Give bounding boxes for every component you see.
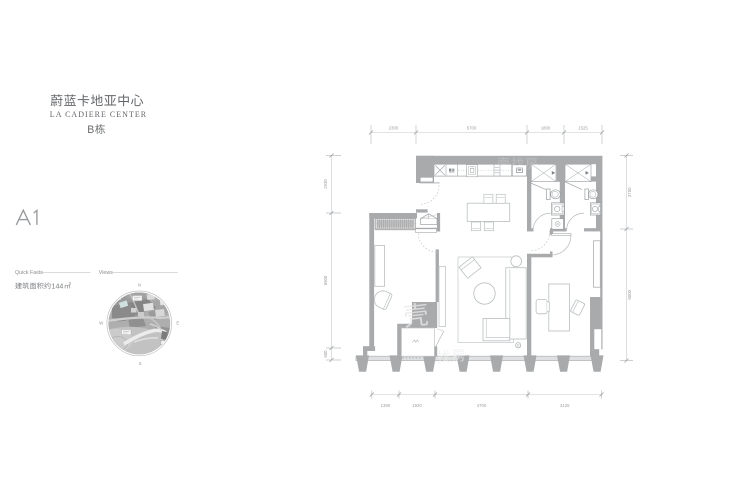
svg-text:600: 600 xyxy=(323,350,328,358)
svg-text:N: N xyxy=(138,283,141,288)
svg-text:S: S xyxy=(139,361,142,366)
svg-text:2930: 2930 xyxy=(323,179,328,189)
svg-text:4700: 4700 xyxy=(477,403,487,408)
svg-text:Quick Facts: Quick Facts xyxy=(15,270,43,276)
svg-text:6900: 6900 xyxy=(323,275,328,285)
svg-text:LA CADIERE CENTER: LA CADIERE CENTER xyxy=(50,110,147,119)
svg-text:B: B xyxy=(87,124,94,136)
svg-text:2300: 2300 xyxy=(389,126,399,131)
svg-text:E: E xyxy=(176,320,179,325)
svg-text:3750: 3750 xyxy=(627,187,632,197)
svg-text:1525: 1525 xyxy=(578,126,588,131)
svg-text:1800: 1800 xyxy=(541,126,551,131)
svg-text:Views: Views xyxy=(99,270,113,276)
svg-text:1920: 1920 xyxy=(412,403,422,408)
svg-text:6000: 6000 xyxy=(627,289,632,299)
svg-text:W: W xyxy=(99,321,104,326)
svg-text:5700: 5700 xyxy=(467,126,477,131)
svg-text:3125: 3125 xyxy=(560,403,570,408)
svg-text:1390: 1390 xyxy=(381,403,391,408)
svg-text:144: 144 xyxy=(52,282,64,290)
